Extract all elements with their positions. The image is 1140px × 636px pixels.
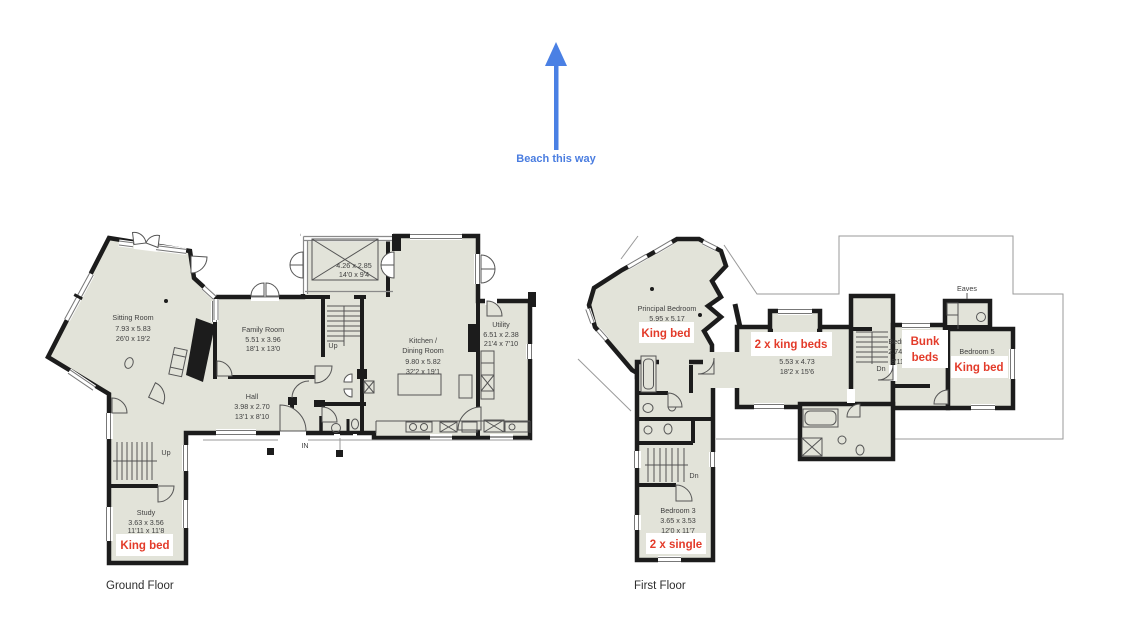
svg-text:Dining Room: Dining Room [402,346,444,355]
svg-text:26'0 x 19'2: 26'0 x 19'2 [116,334,150,343]
svg-text:Beach this way: Beach this way [516,153,596,165]
svg-text:Family Room: Family Room [242,325,284,334]
svg-text:Sitting Room: Sitting Room [112,313,153,322]
svg-text:Bedroom 3: Bedroom 3 [660,506,695,515]
svg-text:11'11 x 11'8: 11'11 x 11'8 [128,526,165,535]
svg-text:5.95 x 5.17: 5.95 x 5.17 [649,314,685,323]
svg-text:Up: Up [328,341,337,350]
svg-text:14'0 x 9'4: 14'0 x 9'4 [339,270,369,279]
svg-text:6.51 x 2.38: 6.51 x 2.38 [483,330,519,339]
svg-text:beds: beds [912,352,939,364]
svg-text:7.93 x 5.83: 7.93 x 5.83 [115,324,151,333]
svg-text:Dn: Dn [876,364,885,373]
svg-text:2 x single: 2 x single [650,539,702,551]
svg-text:32'2 x 19'1: 32'2 x 19'1 [406,367,440,376]
svg-text:13'1 x 8'10: 13'1 x 8'10 [235,412,269,421]
svg-text:5.53 x 4.73: 5.53 x 4.73 [779,357,815,366]
svg-text:3.65 x 3.53: 3.65 x 3.53 [660,516,696,525]
svg-text:Bunk: Bunk [911,336,940,348]
svg-text:18'1 x 13'0: 18'1 x 13'0 [246,344,280,353]
svg-text:Eaves: Eaves [957,284,977,293]
svg-text:King bed: King bed [954,362,1003,374]
svg-text:Principal Bedroom: Principal Bedroom [638,304,697,313]
svg-text:Kitchen /: Kitchen / [409,336,437,345]
svg-text:Bedroom 5: Bedroom 5 [959,347,994,356]
svg-text:Ground Floor: Ground Floor [106,580,174,592]
svg-text:Up: Up [161,448,170,457]
svg-text:Hall: Hall [246,392,259,401]
svg-text:First Floor: First Floor [634,580,686,592]
svg-text:18'2 x 15'6: 18'2 x 15'6 [780,367,814,376]
svg-text:4.26 x 2.85: 4.26 x 2.85 [336,261,372,270]
svg-text:9.80 x 5.82: 9.80 x 5.82 [405,357,441,366]
svg-text:3.98 x 2.70: 3.98 x 2.70 [234,402,270,411]
svg-text:King bed: King bed [641,328,690,340]
svg-text:Utility: Utility [492,320,510,329]
svg-text:2 x king beds: 2 x king beds [755,339,828,351]
svg-text:5.51 x 3.96: 5.51 x 3.96 [245,335,281,344]
svg-text:21'4 x 7'10: 21'4 x 7'10 [484,339,518,348]
svg-text:Dn: Dn [689,471,698,480]
svg-text:King bed: King bed [120,540,169,552]
svg-text:IN: IN [301,441,308,450]
svg-text:Study: Study [137,508,156,517]
